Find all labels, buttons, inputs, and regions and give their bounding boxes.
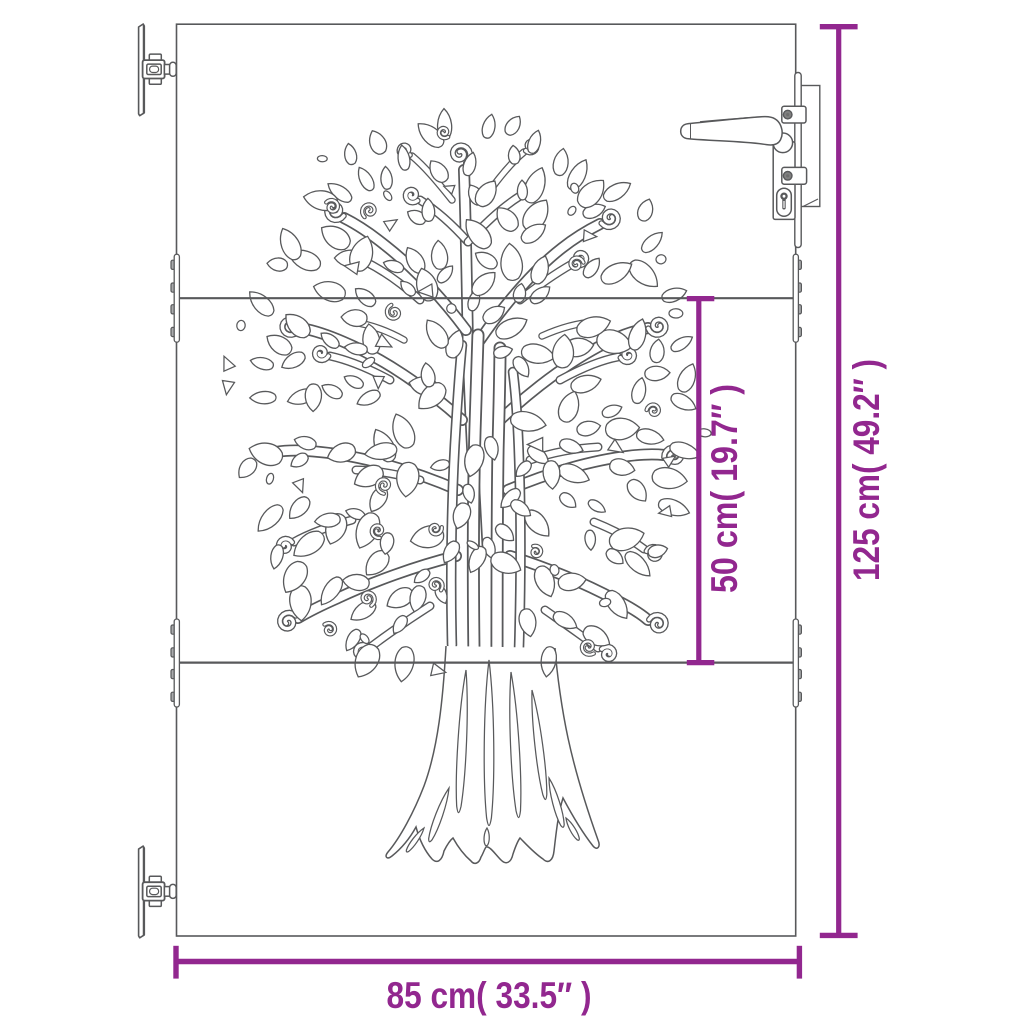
svg-text:85 cm( 33.5″ ): 85 cm( 33.5″ ) (387, 975, 592, 1016)
svg-text:50 cm( 19.7″ ): 50 cm( 19.7″ ) (704, 384, 745, 593)
svg-text:125 cm( 49.2″ ): 125 cm( 49.2″ ) (846, 359, 887, 581)
